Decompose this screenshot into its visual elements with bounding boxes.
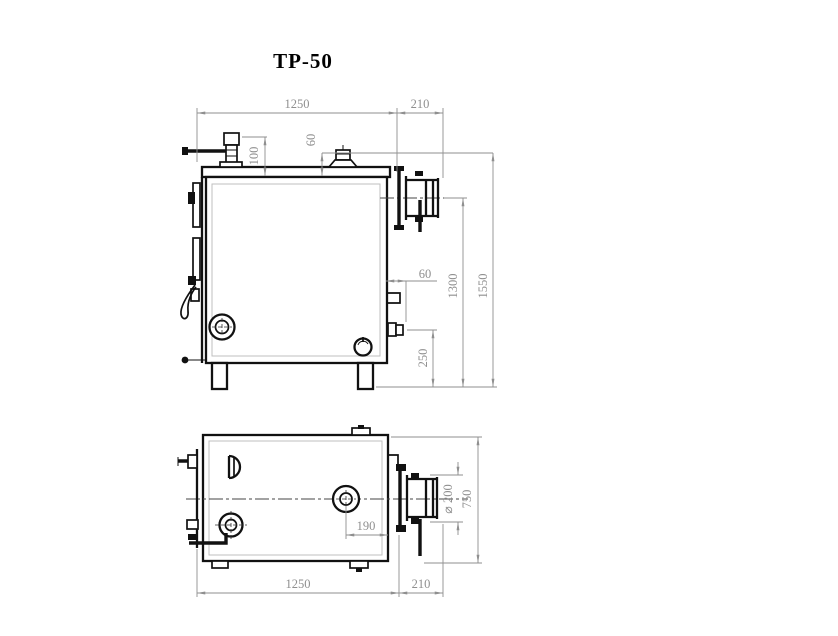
wall-bracket [388,293,400,303]
body-front [206,177,387,363]
boiler-drawing: ТР-50 [0,0,838,636]
dim-drain-height-label: 250 [416,349,430,368]
dim-front-flue-length-label: 210 [411,97,430,111]
dim-overall-height-label: 1550 [476,274,490,299]
legs [212,363,373,389]
body-plan [203,435,388,561]
dim-cap-to-edge-label: 190 [357,519,376,533]
dim-drain-offset-label: 60 [419,267,432,281]
sight-glass [210,315,235,340]
dim-body-depth-label: 750 [460,490,474,509]
dim-plan-flue-length-label: 210 [412,577,431,591]
drain-fitting [388,323,403,336]
lid [202,167,390,177]
filler-cap [329,145,357,167]
front-view: 1250 210 100 60 60 1300 1550 250 [181,97,497,389]
valve-knob [355,337,372,356]
drawing-title: ТР-50 [273,49,333,73]
plan-left-fitting [178,455,198,468]
technical-drawing-page: ТР-50 [0,0,838,636]
dim-flue-diameter-label: ⌀ 200 [441,484,455,513]
dim-front-width-label: 1250 [285,97,310,111]
plan-view: 190 ⌀ 200 750 1250 210 [178,425,482,597]
dim-valve-height-label: 100 [247,147,261,166]
flue-outlet-plan [388,455,437,556]
flue-outlet-front [380,166,465,232]
dim-flue-axis-height-label: 1300 [446,274,460,299]
dim-cap-height-label: 60 [304,134,318,147]
door-hinges [188,183,200,301]
dim-plan-width-label: 1250 [286,577,311,591]
safety-valve [182,133,242,167]
